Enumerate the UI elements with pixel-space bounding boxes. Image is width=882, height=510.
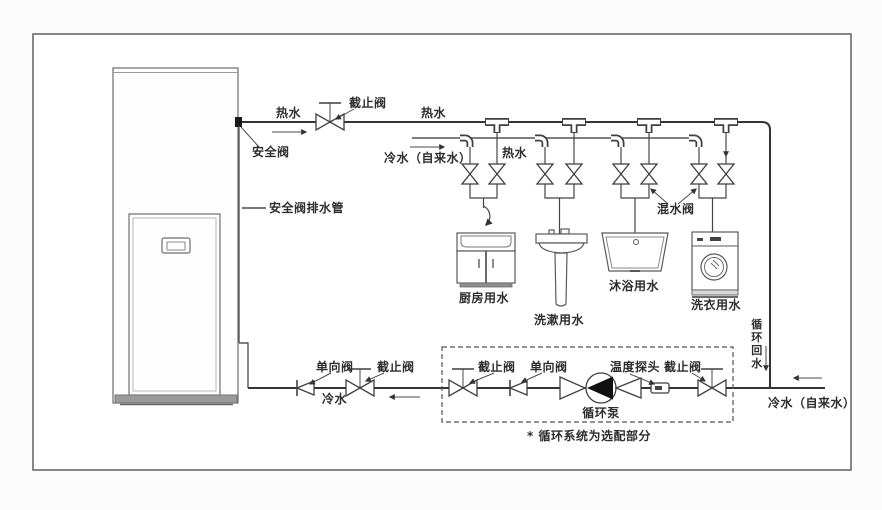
fixture-label-laundry: 洗衣用水 (691, 297, 742, 312)
check-valve-left-label: 单向阀 (316, 359, 354, 374)
optional-note: * 循环系统为选配部分 (527, 428, 651, 443)
safety-valve-label: 安全阀 (252, 144, 290, 159)
water-heater-unit (113, 68, 242, 405)
heater-base (115, 395, 237, 403)
temp-probe-label: 温度探头 (610, 359, 660, 374)
svg-text:环: 环 (751, 331, 763, 344)
check-valve-loop-label: 单向阀 (530, 359, 568, 374)
stop-valve-main-label: 截止阀 (349, 95, 387, 110)
mixing-valve-label: 混水阀 (657, 201, 695, 216)
hot-water-branch-label: 热水 (502, 145, 528, 160)
kitchen-sink (457, 233, 515, 287)
circulation-pump-label: 循环泵 (582, 405, 620, 420)
fixture-label-basin: 洗漱用水 (534, 312, 585, 327)
stop-valve-loop-left-label: 截止阀 (478, 359, 516, 374)
safety-valve-drain-label: 安全阀排水管 (269, 200, 344, 215)
hot-water-out-label: 热水 (276, 105, 302, 120)
plumbing-diagram: 热水 截止阀 热水 安全阀 安全阀排水管 冷水（自来水） 热水 混水阀 循 环 … (0, 0, 882, 510)
fixture-label-kitchen: 厨房用水 (459, 290, 510, 305)
bathtub (602, 233, 668, 271)
svg-text:循: 循 (751, 317, 763, 331)
svg-text:水: 水 (751, 356, 763, 370)
svg-text:回: 回 (751, 343, 763, 357)
heater-display-screen (167, 242, 185, 250)
cold-water-supply-top-label: 冷水（自来水） (384, 150, 472, 165)
stop-valve-left-label: 截止阀 (377, 359, 415, 374)
fixture-label-bath: 沐浴用水 (609, 278, 660, 293)
temperature-probe (651, 383, 669, 393)
screenshot-canvas: 热水 截止阀 热水 安全阀 安全阀排水管 冷水（自来水） 热水 混水阀 循 环 … (0, 0, 882, 510)
cold-water-left-label: 冷水 (322, 391, 348, 406)
hot-water-main-label: 热水 (421, 105, 447, 120)
washing-machine (692, 232, 738, 297)
circulation-return-label: 循 环 回 水 (751, 317, 763, 370)
stop-valve-loop-right-label: 截止阀 (664, 359, 702, 374)
cold-water-supply-bottom-label: 冷水（自来水） (768, 395, 856, 410)
hot-water-outlet-port (235, 117, 242, 127)
